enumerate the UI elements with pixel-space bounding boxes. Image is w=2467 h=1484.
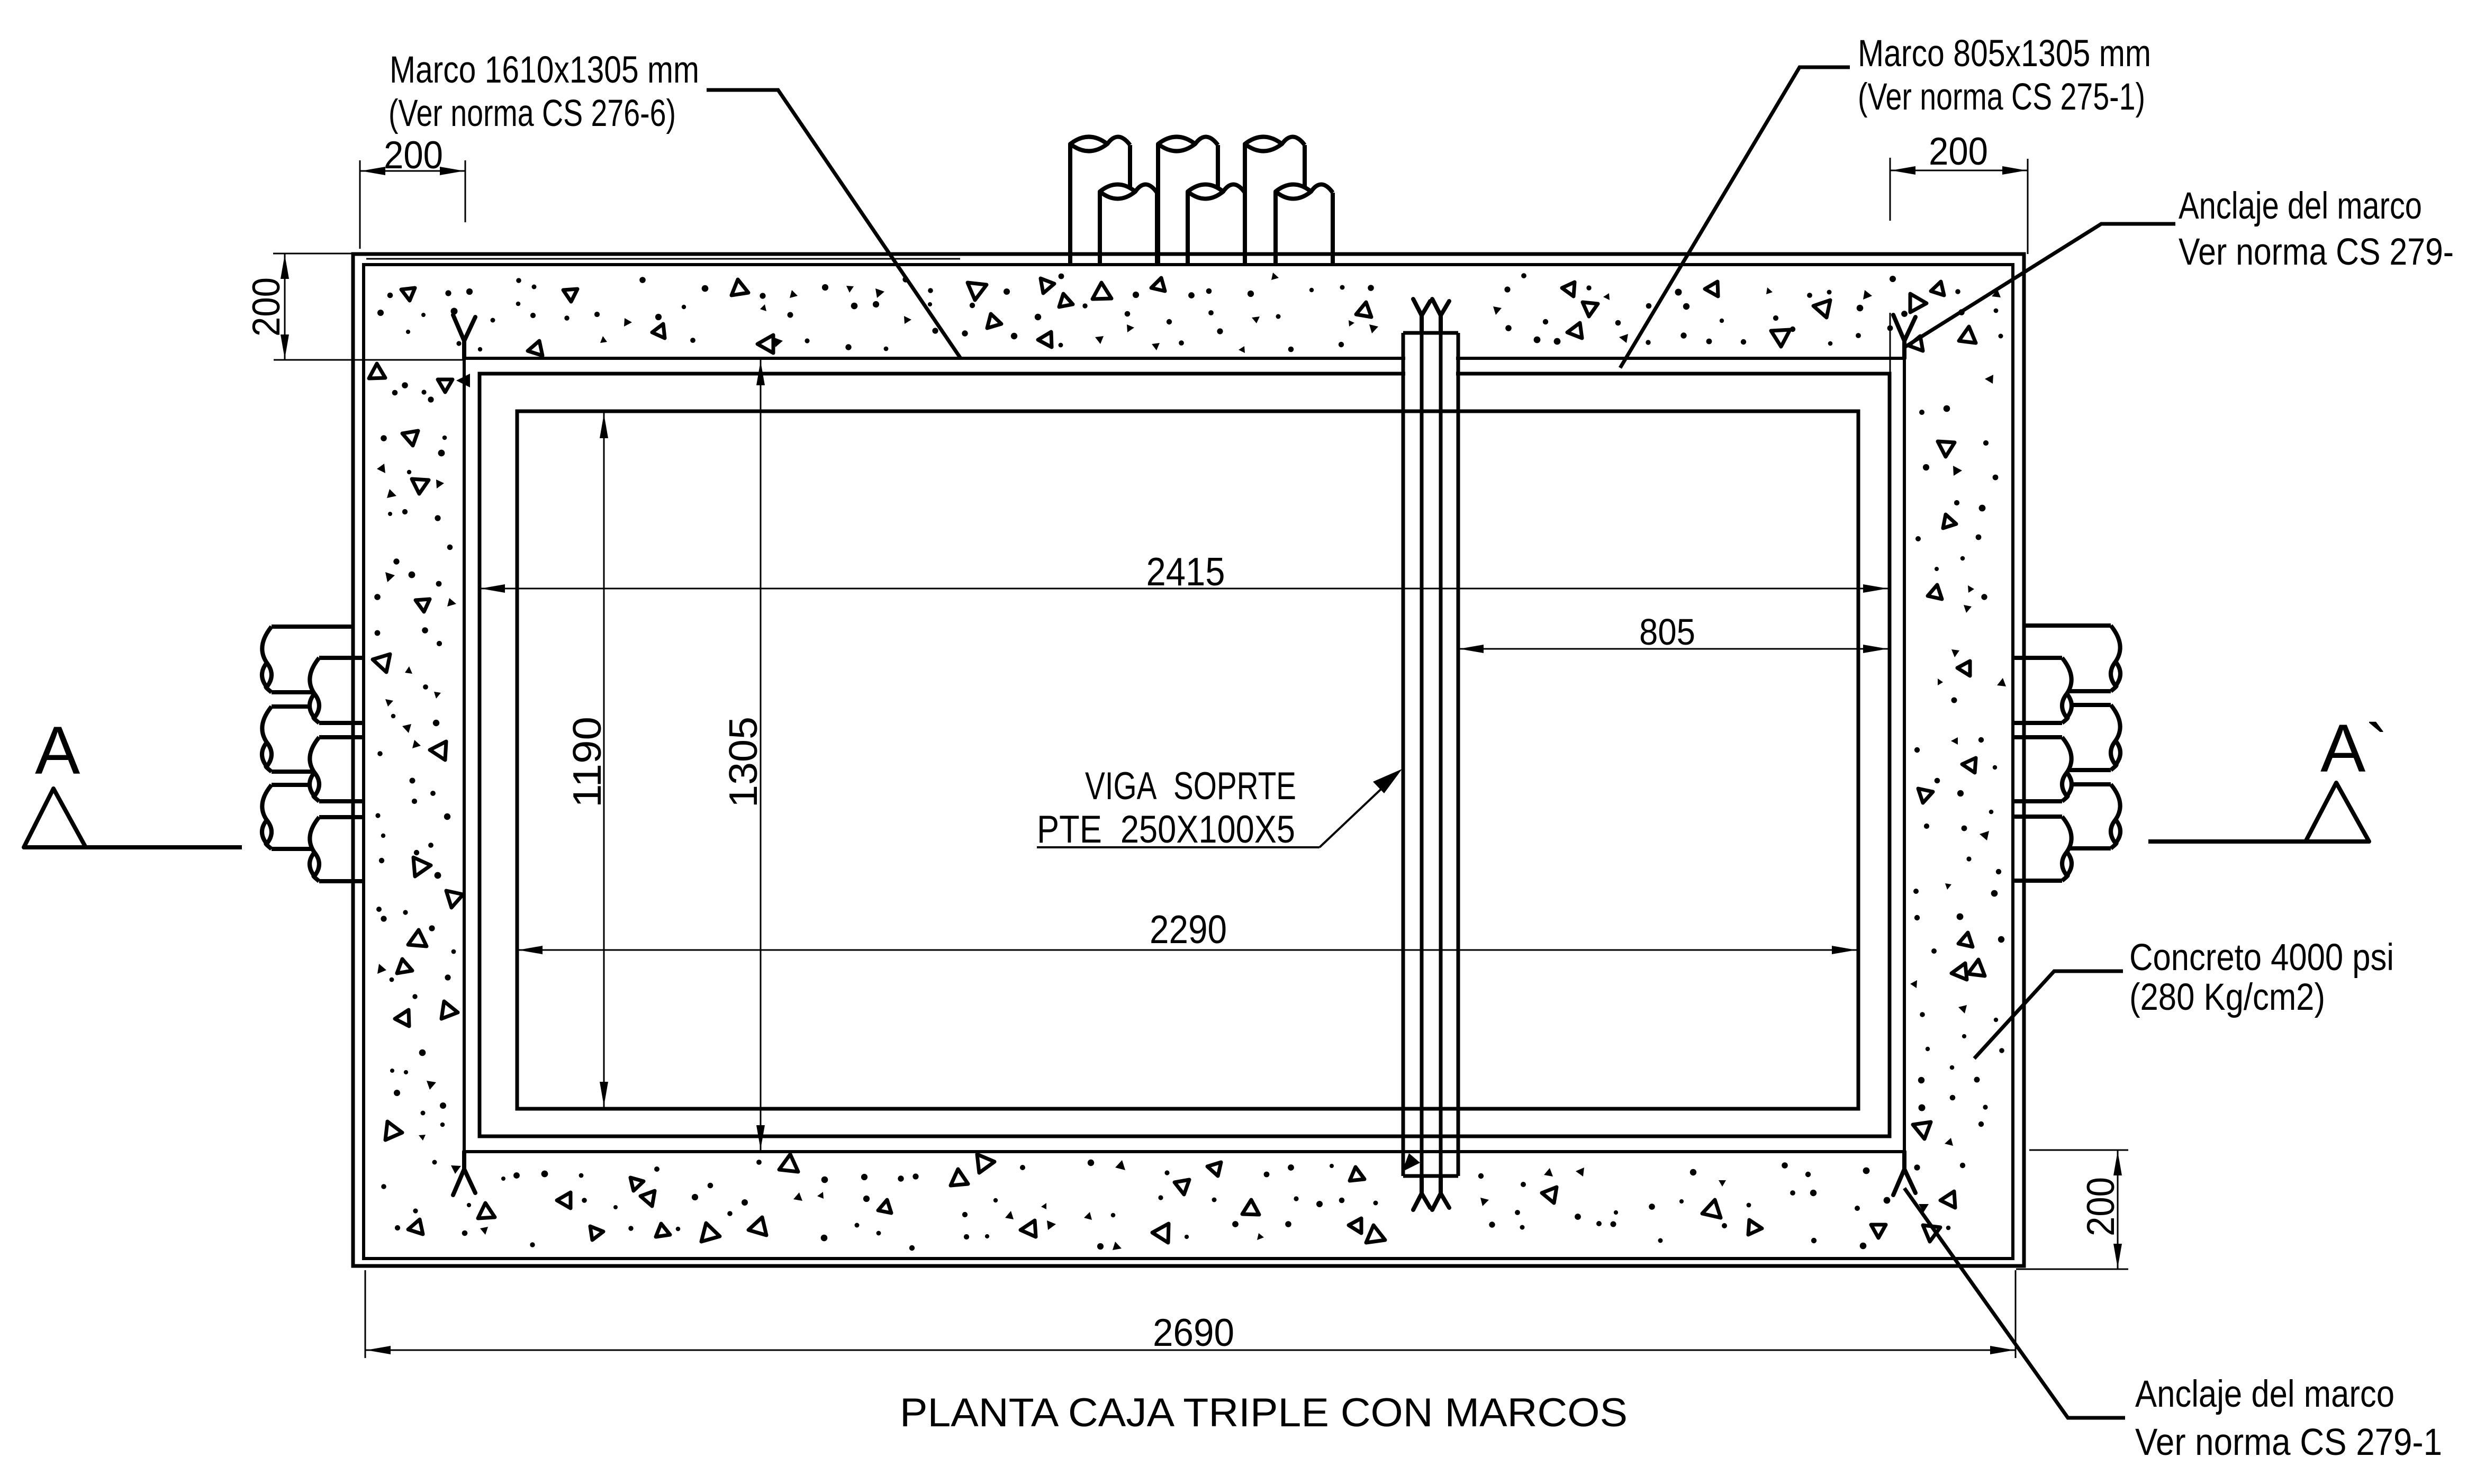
svg-text:Ver norma CS 279-1: Ver norma CS 279-1 — [2135, 1422, 2442, 1463]
svg-text:Anclaje del marco: Anclaje del marco — [2135, 1373, 2394, 1415]
svg-text:Concreto 4000 psi: Concreto 4000 psi — [2129, 937, 2394, 979]
svg-text:Ver norma CS 279-: Ver norma CS 279- — [2179, 231, 2454, 273]
svg-text:VIGA SOPRTE: VIGA SOPRTE — [1085, 765, 1296, 808]
svg-text:(280 Kg/cm2): (280 Kg/cm2) — [2129, 976, 2325, 1018]
svg-text:1190: 1190 — [565, 717, 609, 808]
svg-text:PLANTA CAJA TRIPLE CON MARCOS: PLANTA CAJA TRIPLE CON MARCOS — [900, 1390, 1628, 1435]
svg-text:200: 200 — [2080, 1177, 2122, 1236]
svg-text:A`: A` — [2320, 711, 2388, 786]
svg-text:2690: 2690 — [1153, 1311, 1234, 1354]
svg-text:Marco 1610x1305 mm: Marco 1610x1305 mm — [390, 49, 699, 91]
svg-text:200: 200 — [384, 134, 443, 177]
svg-text:PTE 250X100X5: PTE 250X100X5 — [1037, 808, 1295, 851]
svg-text:200: 200 — [245, 277, 288, 337]
svg-text:(Ver norma CS 275-1): (Ver norma CS 275-1) — [1858, 76, 2145, 118]
svg-text:805: 805 — [1639, 611, 1695, 653]
svg-text:2415: 2415 — [1146, 549, 1225, 594]
svg-text:A: A — [35, 713, 80, 789]
svg-text:200: 200 — [1929, 130, 1988, 173]
svg-text:1305: 1305 — [721, 717, 765, 808]
svg-text:(Ver norma CS 276-6): (Ver norma CS 276-6) — [388, 93, 676, 134]
svg-text:Anclaje del marco: Anclaje del marco — [2179, 185, 2422, 227]
svg-text:Marco 805x1305 mm: Marco 805x1305 mm — [1858, 33, 2151, 75]
svg-text:2290: 2290 — [1150, 907, 1227, 952]
